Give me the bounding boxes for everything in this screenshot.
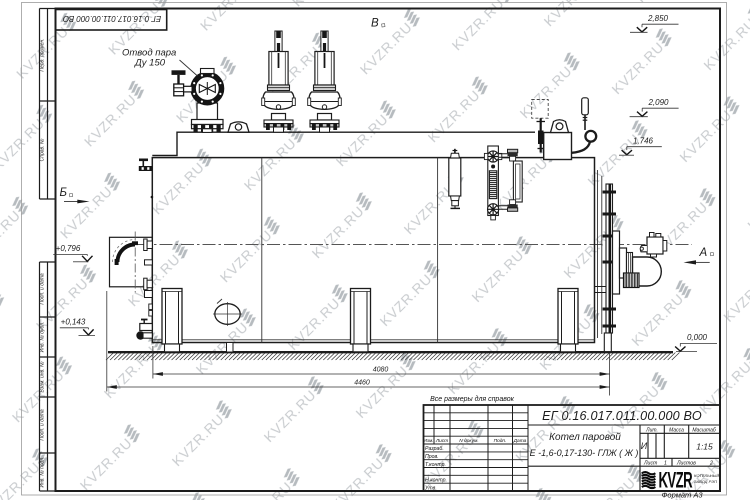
svg-text:Подп.: Подп. [494, 438, 507, 444]
svg-text:4080: 4080 [373, 367, 389, 374]
svg-text:Все размеры для справок: Все размеры для справок [430, 395, 515, 403]
svg-text:В: В [371, 18, 379, 30]
svg-text:Подп. и дата: Подп. и дата [40, 273, 46, 305]
svg-text:0,000: 0,000 [687, 333, 708, 342]
svg-text:КОТЕЛЬНЫЙ: КОТЕЛЬНЫЙ [694, 473, 719, 478]
svg-text:+0,796: +0,796 [56, 244, 81, 253]
svg-text:Изм.: Изм. [423, 438, 433, 444]
svg-text:4460: 4460 [354, 380, 370, 387]
svg-text:Б: Б [60, 187, 68, 199]
svg-text:ЗАВОД РЭП: ЗАВОД РЭП [694, 479, 717, 484]
svg-text:2,090: 2,090 [647, 98, 669, 107]
svg-text:Подп. и дата: Подп. и дата [40, 409, 46, 441]
svg-text:Т.контр.: Т.контр. [425, 462, 446, 468]
svg-text:Котел паровой: Котел паровой [549, 432, 621, 443]
svg-text:Лит.: Лит. [645, 427, 658, 433]
svg-text:Пров.: Пров. [425, 454, 439, 460]
svg-text:+0,143: +0,143 [61, 318, 86, 327]
svg-text:Инв. № подл.: Инв. № подл. [40, 456, 46, 487]
svg-text:Лист: Лист [435, 438, 448, 444]
svg-text:N докум.: N докум. [459, 438, 478, 444]
svg-text:Е -1,6-0,17-130- ГЛЖ ( Ж ): Е -1,6-0,17-130- ГЛЖ ( Ж ) [530, 448, 639, 458]
svg-text:ЕГ 0.16.017.011.00.000 ВО: ЕГ 0.16.017.011.00.000 ВО [542, 409, 702, 423]
svg-text:Взам. инв. №: Взам. инв. № [40, 361, 46, 393]
svg-text:Листов: Листов [676, 461, 696, 467]
svg-text:Перв. примен.: Перв. примен. [40, 38, 46, 71]
svg-text:Дата: Дата [513, 438, 527, 444]
svg-text:KVZR: KVZR [659, 468, 693, 493]
svg-text:ЕГ 0.16.017.011.00.000 ВО: ЕГ 0.16.017.011.00.000 ВО [63, 14, 161, 23]
svg-text:Утв.: Утв. [425, 485, 437, 491]
svg-text:Формат А3: Формат А3 [661, 491, 703, 500]
svg-text:1:15: 1:15 [696, 442, 713, 452]
svg-text:Н.контр.: Н.контр. [425, 478, 447, 484]
svg-text:Разраб.: Разраб. [425, 446, 444, 452]
svg-text:Справ. №: Справ. № [40, 138, 46, 161]
svg-text:А: А [699, 247, 708, 259]
svg-text:Масса: Масса [669, 427, 684, 433]
svg-text:Масштаб: Масштаб [692, 427, 716, 433]
svg-text:Лист: Лист [643, 461, 658, 467]
svg-text:2,850: 2,850 [647, 14, 669, 23]
svg-text:Инв. № дубл.: Инв. № дубл. [40, 322, 46, 353]
svg-text:2: 2 [709, 461, 713, 467]
svg-text:1,746: 1,746 [633, 137, 654, 146]
svg-text:1: 1 [664, 461, 667, 467]
svg-text:И: И [641, 441, 648, 451]
svg-text:Ду 150: Ду 150 [134, 58, 166, 69]
